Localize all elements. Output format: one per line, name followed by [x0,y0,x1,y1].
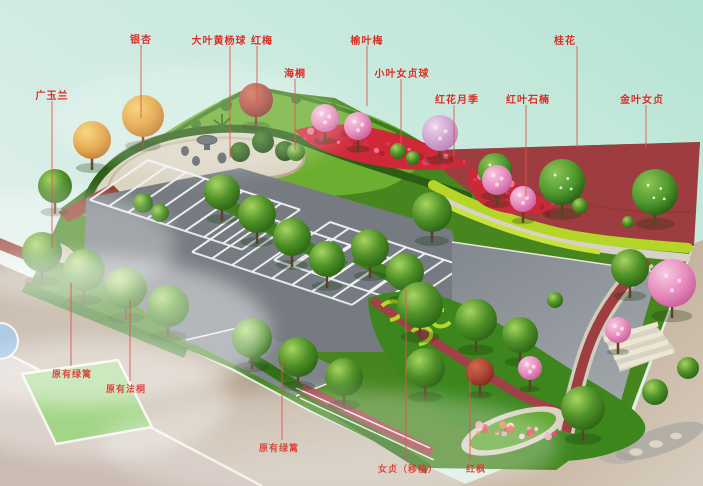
landscape-plan-rendering: 广玉兰银杏大叶黄杨球红梅海桐榆叶梅小叶女贞球红花月季红叶石楠桂花金叶女贞原有绿篱… [0,0,703,486]
site-plan-scene [0,0,703,486]
